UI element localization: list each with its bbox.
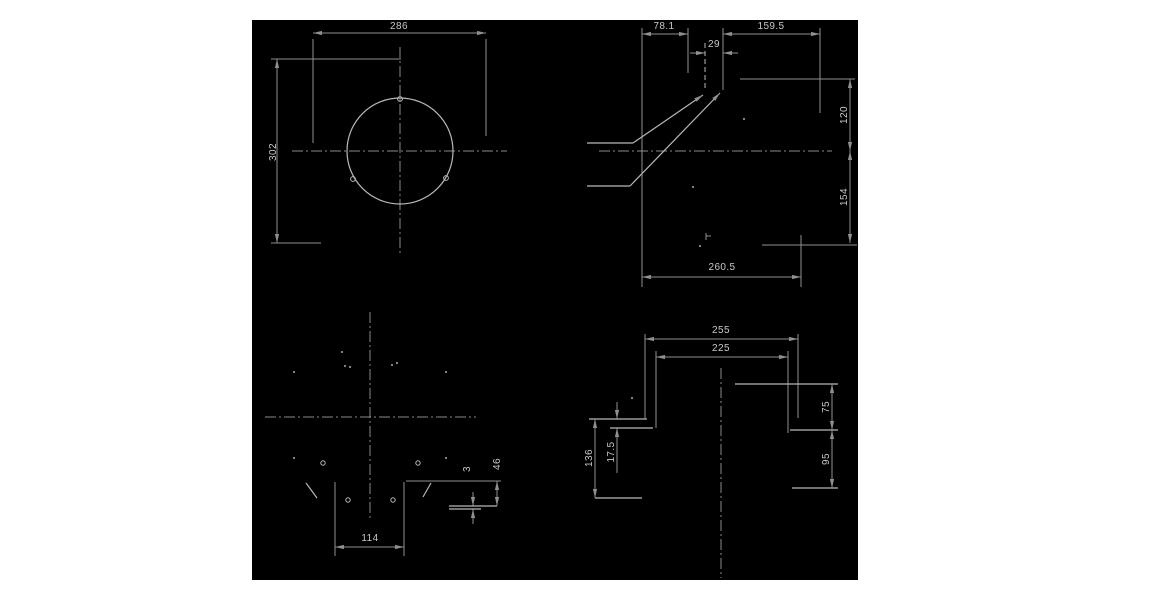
tick-dot	[631, 397, 633, 399]
tick-dot	[293, 457, 295, 459]
dimension-label: 75	[821, 401, 832, 413]
dimension-label: 114	[361, 533, 378, 544]
dimension-label: 95	[821, 453, 832, 465]
dimension-label: 286	[390, 21, 408, 32]
dimension-label: 17.5	[606, 441, 617, 462]
dimension-label: 255	[712, 325, 730, 336]
tick-dot	[391, 364, 393, 366]
technical-drawing: 28630278.129159.5120154260.5114463255225…	[0, 0, 1160, 600]
dimension-label: 159.5	[757, 21, 784, 32]
dimension-label: 3	[462, 466, 473, 472]
dimension-label: 29	[708, 39, 720, 50]
tick-dot	[341, 351, 343, 353]
tick-dot	[445, 371, 447, 373]
tick-dot	[396, 362, 398, 364]
tick-dot	[699, 245, 701, 247]
dimension-label: 136	[584, 449, 595, 467]
dimension-label: 260.5	[708, 262, 735, 273]
dimension-label: 302	[268, 143, 279, 161]
tick-dot	[293, 371, 295, 373]
tick-dot	[349, 366, 351, 368]
tick-dot	[445, 457, 447, 459]
dimension-label: 120	[839, 106, 850, 124]
tick-dot	[344, 365, 346, 367]
tick-dot	[692, 186, 694, 188]
dimension-label: 225	[712, 343, 730, 354]
dimension-label: 46	[492, 458, 503, 470]
dimension-label: 154	[839, 188, 850, 206]
dimension-label: 78.1	[653, 21, 674, 32]
drawing-canvas	[252, 20, 858, 580]
cad-application-viewport: 28630278.129159.5120154260.5114463255225…	[0, 0, 1160, 600]
tick-dot	[743, 118, 745, 120]
